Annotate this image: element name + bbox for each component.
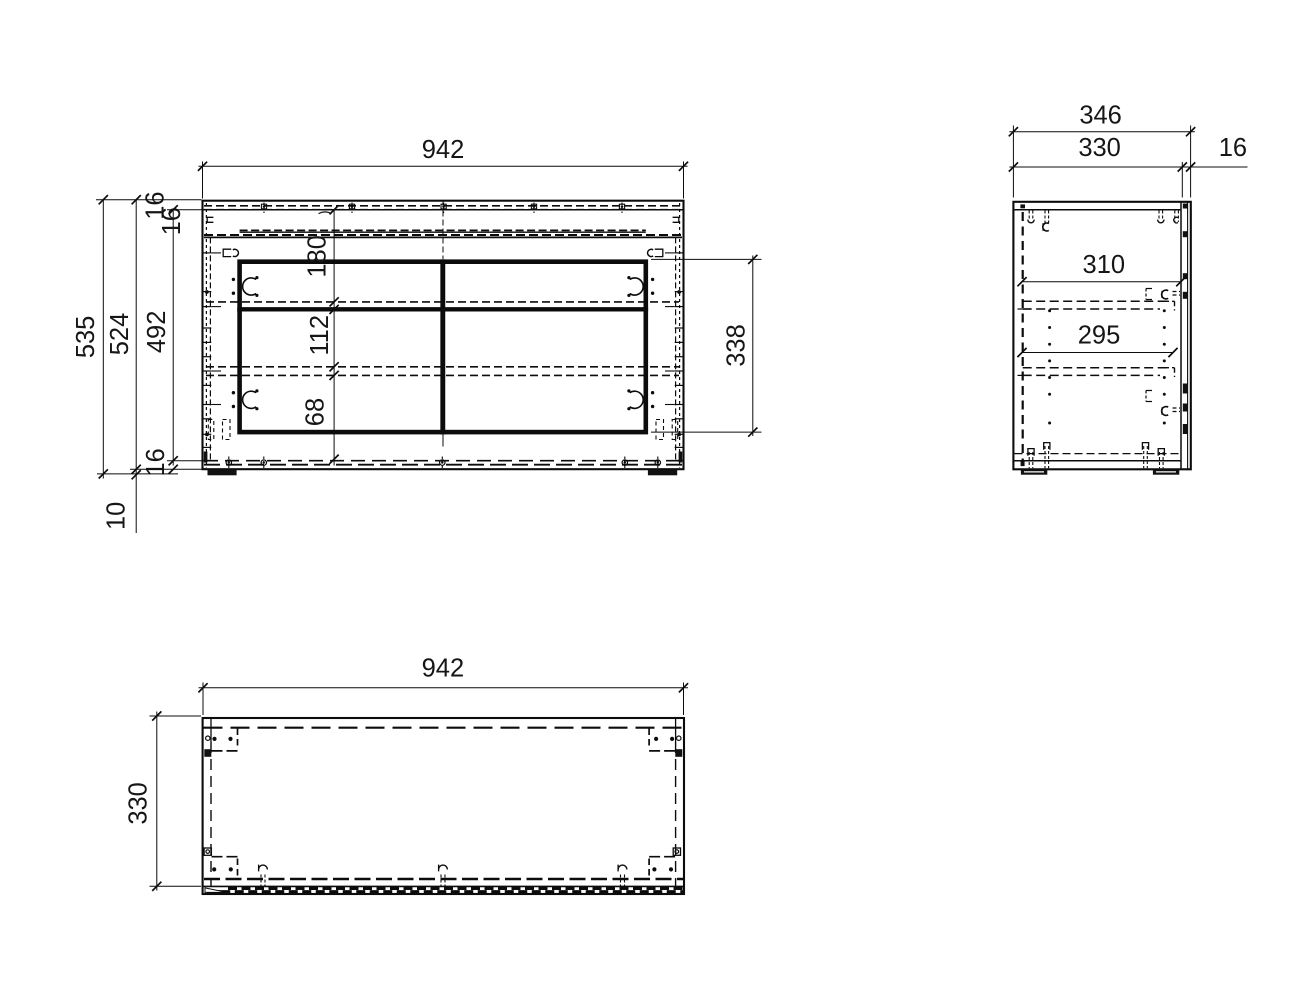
svg-text:524: 524	[106, 313, 134, 356]
svg-text:68: 68	[302, 398, 330, 426]
svg-text:338: 338	[723, 324, 751, 367]
svg-text:112: 112	[306, 315, 334, 356]
svg-text:180: 180	[303, 235, 331, 278]
svg-text:16: 16	[158, 207, 186, 235]
svg-text:942: 942	[422, 136, 465, 164]
svg-text:330: 330	[125, 782, 153, 825]
svg-text:346: 346	[1079, 102, 1122, 130]
svg-text:16: 16	[1219, 134, 1247, 162]
svg-text:10: 10	[102, 502, 130, 530]
svg-text:330: 330	[1078, 134, 1121, 162]
svg-text:310: 310	[1083, 251, 1126, 279]
svg-text:295: 295	[1078, 322, 1121, 350]
svg-text:942: 942	[422, 655, 465, 683]
svg-text:535: 535	[72, 316, 100, 359]
svg-text:16: 16	[142, 448, 170, 476]
svg-text:492: 492	[143, 311, 171, 354]
